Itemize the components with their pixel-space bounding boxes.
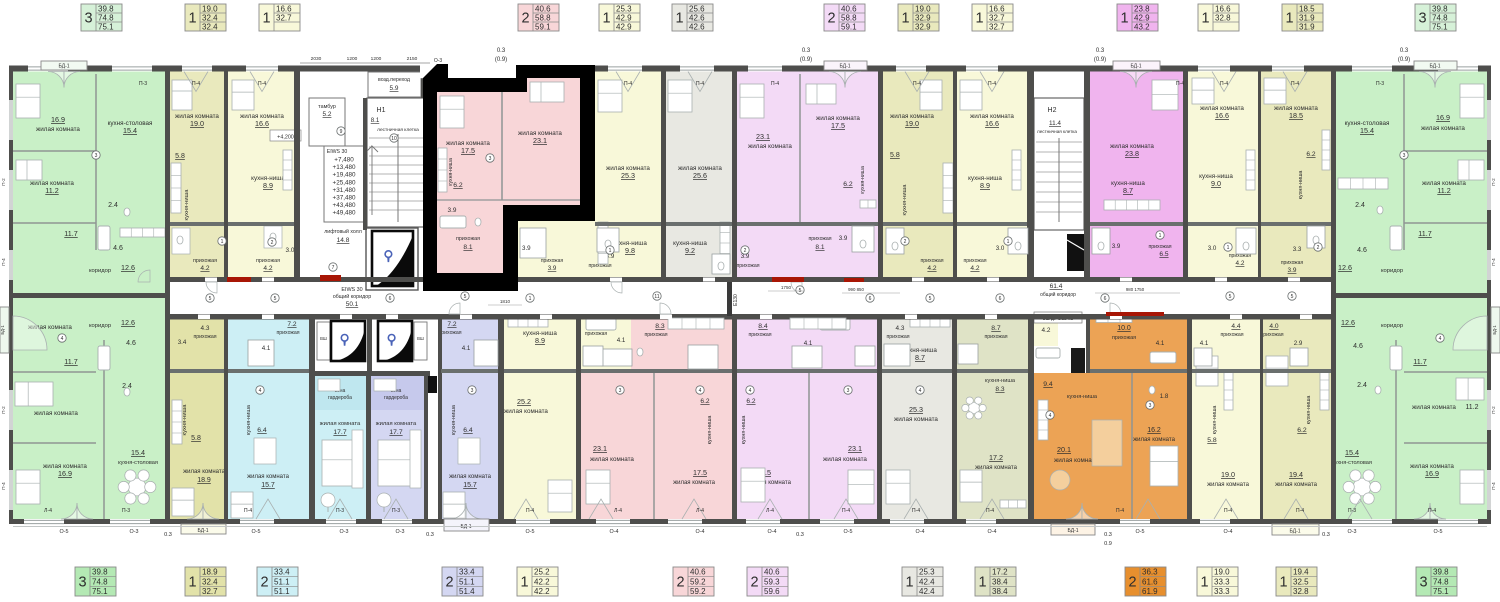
svg-text:4.3: 4.3 <box>201 325 210 332</box>
svg-text:EIWS 30: EIWS 30 <box>341 287 362 293</box>
svg-text:18.5: 18.5 <box>1299 5 1315 14</box>
svg-text:32.4: 32.4 <box>202 23 218 32</box>
svg-text:4.2: 4.2 <box>1042 327 1051 334</box>
svg-text:3.9: 3.9 <box>448 207 457 214</box>
svg-text:П-4: П-4 <box>1220 81 1228 87</box>
svg-text:БД-1: БД-1 <box>58 64 69 70</box>
svg-text:50.1: 50.1 <box>346 301 359 308</box>
svg-text:51.1: 51.1 <box>274 577 290 586</box>
svg-text:H1: H1 <box>377 107 386 114</box>
svg-text:гардероба: гардероба <box>384 395 408 401</box>
svg-text:2: 2 <box>1317 245 1320 251</box>
svg-text:5: 5 <box>929 296 932 302</box>
svg-text:прихожая: прихожая <box>920 258 943 264</box>
svg-text:прихожая: прихожая <box>644 332 667 338</box>
svg-text:5: 5 <box>1291 294 1294 300</box>
svg-text:О-5: О-5 <box>844 529 853 535</box>
svg-text:8.7: 8.7 <box>1123 186 1133 195</box>
svg-text:18.5: 18.5 <box>1289 111 1303 120</box>
svg-text:17.2: 17.2 <box>992 568 1008 577</box>
svg-text:4.0: 4.0 <box>1269 323 1278 330</box>
svg-text:980 1750: 980 1750 <box>1126 287 1145 292</box>
svg-text:1750: 1750 <box>781 285 792 290</box>
svg-text:3: 3 <box>489 156 492 162</box>
svg-text:О-5: О-5 <box>1434 529 1443 535</box>
svg-text:18.9: 18.9 <box>197 477 211 484</box>
svg-text:гардероба: гардероба <box>328 395 352 401</box>
svg-text:П-3: П-3 <box>122 508 130 514</box>
svg-text:6.4: 6.4 <box>463 427 473 434</box>
svg-text:75.1: 75.1 <box>98 23 114 32</box>
svg-text:11.2: 11.2 <box>1465 404 1478 411</box>
svg-text:П-3: П-3 <box>336 508 344 514</box>
svg-text:2: 2 <box>904 239 907 245</box>
svg-text:прихожая: прихожая <box>736 263 759 269</box>
svg-text:П-4: П-4 <box>1296 508 1304 514</box>
svg-text:59.1: 59.1 <box>841 23 857 32</box>
svg-text:БД-1: БД-1 <box>197 528 208 534</box>
svg-text:прихожая: прихожая <box>984 334 1007 340</box>
svg-text:1: 1 <box>1007 239 1010 245</box>
svg-text:1: 1 <box>1227 245 1230 251</box>
svg-text:кухня-ниша: кухня-ниша <box>1298 171 1304 200</box>
svg-text:2: 2 <box>744 248 747 254</box>
svg-text:11.2: 11.2 <box>1437 186 1450 195</box>
svg-text:8.4: 8.4 <box>758 323 768 330</box>
svg-text:кухня-ниша: кухня-ниша <box>902 184 908 216</box>
svg-text:кухня-ниша: кухня-ниша <box>448 158 454 186</box>
svg-text:25.6: 25.6 <box>693 171 707 180</box>
svg-text:15.7: 15.7 <box>463 482 477 489</box>
svg-text:58.8: 58.8 <box>535 14 551 23</box>
svg-text:3.4: 3.4 <box>178 339 187 346</box>
svg-text:О-4: О-4 <box>768 529 777 535</box>
svg-text:42.9: 42.9 <box>1134 14 1150 23</box>
svg-text:59.1: 59.1 <box>535 23 551 32</box>
svg-text:5.8: 5.8 <box>890 152 900 159</box>
svg-text:П-4: П-4 <box>1224 508 1232 514</box>
svg-text:14.8: 14.8 <box>337 237 350 244</box>
svg-text:11.7: 11.7 <box>1418 229 1431 238</box>
svg-text:32.7: 32.7 <box>989 23 1005 32</box>
svg-text:1: 1 <box>520 575 528 591</box>
svg-text:1: 1 <box>901 11 909 27</box>
svg-text:прихожая: прихожая <box>963 258 986 264</box>
svg-text:51.1: 51.1 <box>274 587 290 596</box>
svg-text:6.2: 6.2 <box>700 398 709 405</box>
svg-text:0.9: 0.9 <box>1104 541 1112 547</box>
svg-text:11.4: 11.4 <box>1049 120 1061 127</box>
svg-text:прихожая: прихожая <box>886 334 909 340</box>
svg-text:жилая комната: жилая комната <box>673 480 715 486</box>
svg-text:25.3: 25.3 <box>616 5 632 14</box>
svg-text:3.9: 3.9 <box>522 245 531 252</box>
svg-text:33.3: 33.3 <box>1214 577 1230 586</box>
svg-text:32.7: 32.7 <box>202 587 218 596</box>
svg-text:4.2: 4.2 <box>200 265 209 272</box>
svg-text:2: 2 <box>750 575 758 591</box>
svg-text:1810: 1810 <box>500 299 511 304</box>
svg-text:4: 4 <box>749 388 752 394</box>
svg-text:О-3: О-3 <box>340 529 349 535</box>
svg-text:25.3: 25.3 <box>909 405 923 414</box>
svg-text:16.6: 16.6 <box>276 5 292 14</box>
svg-text:коридор: коридор <box>1381 323 1403 329</box>
svg-text:19.0: 19.0 <box>905 119 919 128</box>
svg-text:кухня-ниша: кухня-ниша <box>741 416 747 445</box>
svg-text:6.4: 6.4 <box>257 427 267 434</box>
svg-text:23.1: 23.1 <box>756 132 770 141</box>
svg-text:59.3: 59.3 <box>764 577 780 586</box>
svg-text:0.3: 0.3 <box>1104 532 1112 538</box>
svg-text:990 850: 990 850 <box>848 287 864 292</box>
svg-text:4.6: 4.6 <box>1353 343 1363 350</box>
svg-text:+7,480: +7,480 <box>334 157 354 164</box>
svg-text:4.4: 4.4 <box>1231 323 1240 330</box>
svg-text:П-4: П-4 <box>771 81 779 87</box>
svg-text:5.9: 5.9 <box>390 85 399 92</box>
svg-text:4.3: 4.3 <box>896 325 905 332</box>
svg-text:О-4: О-4 <box>696 529 705 535</box>
svg-text:П-4: П-4 <box>1116 508 1124 514</box>
svg-text:кухня-ниша: кухня-ниша <box>1067 394 1098 400</box>
svg-text:61.4: 61.4 <box>1050 283 1063 290</box>
svg-text:жилая комната: жилая комната <box>823 456 867 463</box>
svg-text:жилая комната: жилая комната <box>376 421 417 427</box>
svg-text:16.6: 16.6 <box>1215 5 1231 14</box>
svg-text:Л-4: Л-4 <box>766 508 774 514</box>
svg-text:П-4: П-4 <box>244 508 252 514</box>
svg-text:кухня-ниша: кухня-ниша <box>985 378 1016 384</box>
svg-text:32.4: 32.4 <box>202 14 218 23</box>
svg-text:36.3: 36.3 <box>1142 568 1158 577</box>
svg-text:кухня-столовая: кухня-столовая <box>1332 460 1372 466</box>
svg-text:4.6: 4.6 <box>113 245 123 252</box>
svg-text:кухня-ниша: кухня-ниша <box>707 416 713 445</box>
svg-text:10: 10 <box>391 136 397 142</box>
svg-text:П-4: П-4 <box>1 258 6 266</box>
svg-text:О-4: О-4 <box>916 529 925 535</box>
svg-text:9.4: 9.4 <box>1043 381 1053 388</box>
svg-text:прихожая: прихожая <box>585 331 608 337</box>
svg-text:17.2: 17.2 <box>989 453 1003 462</box>
svg-text:5.2: 5.2 <box>323 111 332 118</box>
svg-text:коридор: коридор <box>1381 268 1403 274</box>
svg-text:40.6: 40.6 <box>690 568 706 577</box>
svg-text:12.6: 12.6 <box>121 263 135 272</box>
svg-text:4.2: 4.2 <box>1236 260 1245 267</box>
svg-text:8.9: 8.9 <box>535 336 545 345</box>
svg-text:прихожая: прихожая <box>193 258 217 264</box>
svg-text:П-2: П-2 <box>1491 178 1496 186</box>
svg-text:8.3: 8.3 <box>655 323 665 330</box>
svg-text:кухня-ниша: кухня-ниша <box>246 404 252 435</box>
svg-text:6.2: 6.2 <box>1297 427 1307 434</box>
svg-text:+49,480: +49,480 <box>333 210 356 217</box>
svg-text:1: 1 <box>905 575 913 591</box>
svg-text:П-4: П-4 <box>986 508 994 514</box>
svg-text:6.2: 6.2 <box>843 181 853 188</box>
svg-text:кухня-ниша: кухня-ниша <box>860 166 866 194</box>
svg-text:6.2: 6.2 <box>453 182 463 189</box>
svg-text:16.2: 16.2 <box>1147 427 1161 434</box>
svg-text:17.5: 17.5 <box>693 468 707 477</box>
svg-text:2: 2 <box>827 11 835 27</box>
svg-text:74.8: 74.8 <box>98 14 114 23</box>
svg-text:17.7: 17.7 <box>389 429 402 436</box>
svg-text:16.6: 16.6 <box>989 5 1005 14</box>
svg-text:жилая комната: жилая комната <box>1412 404 1456 411</box>
svg-text:10.0: 10.0 <box>1117 325 1131 332</box>
svg-text:25.2: 25.2 <box>534 568 550 577</box>
svg-text:О-3: О-3 <box>434 58 443 64</box>
svg-text:2.4: 2.4 <box>1355 202 1365 209</box>
svg-text:БД-1: БД-1 <box>1130 64 1141 70</box>
svg-text:3.0: 3.0 <box>1208 245 1217 252</box>
svg-text:3.0: 3.0 <box>996 245 1005 252</box>
svg-text:П-3: П-3 <box>139 81 147 87</box>
svg-text:общий коридор: общий коридор <box>1040 291 1076 298</box>
svg-text:5.8: 5.8 <box>175 153 185 160</box>
svg-text:жилая комната: жилая комната <box>183 469 225 475</box>
svg-text:жилая комната: жилая комната <box>1207 482 1249 488</box>
svg-text:17.5: 17.5 <box>831 121 845 130</box>
svg-text:16.6: 16.6 <box>255 119 269 128</box>
svg-text:БД-1: БД-1 <box>1067 528 1078 534</box>
svg-text:1: 1 <box>1285 11 1293 27</box>
svg-text:1: 1 <box>262 11 270 27</box>
svg-text:БД-1: БД-1 <box>1289 529 1300 535</box>
svg-text:жилая комната: жилая комната <box>1133 437 1175 443</box>
svg-text:3: 3 <box>84 11 92 27</box>
svg-text:3.3: 3.3 <box>1293 246 1302 253</box>
svg-text:32.4: 32.4 <box>202 577 218 586</box>
svg-text:кухня-столовая: кухня-столовая <box>118 460 158 466</box>
svg-text:2: 2 <box>676 575 684 591</box>
svg-text:3.9: 3.9 <box>1112 243 1121 250</box>
svg-text:42.4: 42.4 <box>919 587 935 596</box>
svg-text:Л-4: Л-4 <box>44 508 52 514</box>
svg-text:15.7: 15.7 <box>261 482 275 489</box>
svg-text:2.4: 2.4 <box>108 202 118 209</box>
svg-text:15.4: 15.4 <box>131 448 145 457</box>
svg-text:23.8: 23.8 <box>1134 5 1150 14</box>
svg-text:(0.9): (0.9) <box>1398 57 1410 63</box>
svg-text:О-3: О-3 <box>396 529 405 535</box>
svg-text:19.0: 19.0 <box>202 5 218 14</box>
svg-text:9.8: 9.8 <box>625 246 635 255</box>
svg-text:4.1: 4.1 <box>262 345 271 352</box>
svg-text:12.6: 12.6 <box>121 318 135 327</box>
svg-text:9.0: 9.0 <box>1211 179 1221 188</box>
svg-text:жилая комната: жилая комната <box>320 421 361 427</box>
svg-text:1: 1 <box>1279 575 1287 591</box>
svg-text:74.8: 74.8 <box>92 577 108 586</box>
svg-text:1: 1 <box>221 239 224 245</box>
svg-text:ВШ: ВШ <box>320 336 327 341</box>
svg-text:15.4: 15.4 <box>1360 126 1374 135</box>
svg-text:4: 4 <box>1439 336 1442 342</box>
svg-text:1200: 1200 <box>371 56 382 62</box>
svg-text:2: 2 <box>1128 575 1136 591</box>
svg-text:23.1: 23.1 <box>533 136 547 145</box>
svg-text:59.2: 59.2 <box>690 577 706 586</box>
svg-text:Л-4: Л-4 <box>614 508 622 514</box>
svg-text:42.9: 42.9 <box>616 23 632 32</box>
svg-text:кухня-ниша: кухня-ниша <box>451 404 457 435</box>
svg-text:40.6: 40.6 <box>764 568 780 577</box>
svg-text:1200: 1200 <box>347 56 358 62</box>
svg-text:+4,200: +4,200 <box>277 135 294 141</box>
svg-text:1: 1 <box>602 11 610 27</box>
svg-text:12.6: 12.6 <box>1338 263 1352 272</box>
svg-text:31.9: 31.9 <box>1299 14 1315 23</box>
svg-text:16.9: 16.9 <box>1436 113 1450 122</box>
svg-text:16.6: 16.6 <box>985 119 999 128</box>
svg-text:9.2: 9.2 <box>685 246 695 255</box>
svg-text:59.6: 59.6 <box>764 587 780 596</box>
svg-text:32.8: 32.8 <box>1293 587 1309 596</box>
svg-text:жилая комната: жилая комната <box>894 416 938 423</box>
svg-text:4.6: 4.6 <box>1357 247 1367 254</box>
svg-text:жилая комната: жилая комната <box>1275 482 1317 488</box>
svg-text:Е130: Е130 <box>733 294 739 306</box>
svg-text:H2: H2 <box>1048 107 1057 114</box>
svg-text:4: 4 <box>61 336 64 342</box>
svg-text:1: 1 <box>188 575 196 591</box>
svg-text:1.8: 1.8 <box>1160 393 1169 400</box>
svg-text:11.7: 11.7 <box>1413 357 1426 366</box>
svg-text:прихожая: прихожая <box>193 334 216 340</box>
svg-text:3.9: 3.9 <box>548 265 557 272</box>
svg-text:1: 1 <box>1120 11 1128 27</box>
svg-text:4: 4 <box>919 388 922 394</box>
svg-text:П-4: П-4 <box>912 508 920 514</box>
svg-text:8.3: 8.3 <box>995 386 1004 393</box>
svg-text:О-5: О-5 <box>1136 529 1145 535</box>
svg-text:2: 2 <box>271 240 274 246</box>
svg-text:тамбур: тамбур <box>318 104 336 110</box>
svg-text:4.2: 4.2 <box>927 265 936 272</box>
svg-text:коридор: коридор <box>89 323 111 329</box>
svg-text:(0.9): (0.9) <box>495 57 507 63</box>
svg-text:25.6: 25.6 <box>689 5 705 14</box>
svg-text:лифтовый холл: лифтовый холл <box>324 228 361 235</box>
svg-text:2030: 2030 <box>311 56 322 62</box>
svg-text:прихожая: прихожая <box>1260 332 1283 338</box>
svg-text:П-2: П-2 <box>1 406 6 414</box>
svg-text:0.3: 0.3 <box>802 48 811 54</box>
svg-text:5.8: 5.8 <box>191 435 201 442</box>
svg-text:1: 1 <box>1201 11 1209 27</box>
svg-text:5: 5 <box>1229 294 1232 300</box>
svg-text:1: 1 <box>675 11 683 27</box>
svg-text:42.9: 42.9 <box>616 14 632 23</box>
svg-text:74.8: 74.8 <box>1433 577 1449 586</box>
svg-text:возд.переход: возд.переход <box>378 77 410 83</box>
svg-text:32.9: 32.9 <box>915 23 931 32</box>
svg-text:6: 6 <box>389 296 392 302</box>
svg-text:О-5: О-5 <box>252 529 261 535</box>
svg-text:2.4: 2.4 <box>1357 382 1367 389</box>
svg-text:Л-4: Л-4 <box>696 508 704 514</box>
svg-text:38.4: 38.4 <box>992 577 1008 586</box>
svg-text:0.3: 0.3 <box>1400 48 1409 54</box>
svg-text:17.7: 17.7 <box>333 429 346 436</box>
svg-text:4.1: 4.1 <box>1156 340 1165 347</box>
svg-text:40.6: 40.6 <box>535 5 551 14</box>
svg-text:42.4: 42.4 <box>919 577 935 586</box>
svg-text:38.4: 38.4 <box>992 587 1008 596</box>
svg-text:6: 6 <box>999 296 1002 302</box>
svg-text:кухня-ниша: кухня-ниша <box>1306 396 1312 425</box>
svg-text:коридор: коридор <box>89 268 111 274</box>
svg-text:П-4: П-4 <box>1176 81 1184 87</box>
svg-text:кухня-ниша: кухня-ниша <box>1212 406 1218 435</box>
svg-text:15.4: 15.4 <box>123 126 137 135</box>
svg-text:жилая комната: жилая комната <box>247 474 289 480</box>
svg-text:кухня-ниша: кухня-ниша <box>184 189 190 221</box>
svg-text:31.9: 31.9 <box>1299 23 1315 32</box>
svg-text:19.0: 19.0 <box>1221 470 1235 479</box>
svg-text:4.2: 4.2 <box>263 265 272 272</box>
svg-text:П-4: П-4 <box>913 81 921 87</box>
svg-text:БД-1: БД-1 <box>0 325 5 335</box>
svg-text:4.6: 4.6 <box>126 340 136 347</box>
svg-text:25.3: 25.3 <box>919 568 935 577</box>
svg-text:О-4: О-4 <box>610 529 619 535</box>
svg-text:3: 3 <box>78 575 86 591</box>
svg-text:19.0: 19.0 <box>190 119 204 128</box>
svg-text:59.2: 59.2 <box>690 587 706 596</box>
svg-text:4.2: 4.2 <box>970 265 979 272</box>
svg-text:19.4: 19.4 <box>1293 568 1309 577</box>
svg-text:25.2: 25.2 <box>517 397 531 406</box>
svg-text:1: 1 <box>609 248 612 254</box>
svg-text:33.3: 33.3 <box>1214 587 1230 596</box>
svg-text:БД-1: БД-1 <box>1492 325 1497 335</box>
svg-text:П-4: П-4 <box>1291 81 1299 87</box>
svg-text:39.8: 39.8 <box>92 568 108 577</box>
svg-text:О-5: О-5 <box>526 529 535 535</box>
svg-text:11.7: 11.7 <box>64 357 77 366</box>
svg-text:32.7: 32.7 <box>989 14 1005 23</box>
svg-text:39.8: 39.8 <box>98 5 114 14</box>
svg-text:2: 2 <box>445 575 453 591</box>
svg-text:6.2: 6.2 <box>746 398 755 405</box>
svg-text:П-4: П-4 <box>988 81 996 87</box>
svg-text:0.3: 0.3 <box>796 532 804 538</box>
svg-text:8.1: 8.1 <box>815 244 824 251</box>
svg-text:П-4: П-4 <box>1491 482 1496 490</box>
svg-text:4.1: 4.1 <box>462 345 471 352</box>
svg-text:2: 2 <box>521 11 529 27</box>
svg-text:П-4: П-4 <box>842 508 850 514</box>
svg-text:жилая комната: жилая комната <box>36 126 80 133</box>
svg-text:П-4: П-4 <box>1491 258 1496 266</box>
svg-text:8.7: 8.7 <box>991 325 1001 332</box>
svg-text:жилая комната: жилая комната <box>748 143 792 150</box>
svg-text:23.1: 23.1 <box>593 444 607 453</box>
svg-text:0.3: 0.3 <box>1322 532 1330 538</box>
svg-text:61.9: 61.9 <box>1142 587 1158 596</box>
svg-text:32.8: 32.8 <box>1215 14 1231 23</box>
svg-text:+31,480: +31,480 <box>333 187 356 194</box>
svg-text:БД-1: БД-1 <box>839 64 850 70</box>
svg-text:75.1: 75.1 <box>92 587 108 596</box>
svg-text:42.6: 42.6 <box>689 14 705 23</box>
svg-text:жилая комната: жилая комната <box>1421 125 1465 132</box>
